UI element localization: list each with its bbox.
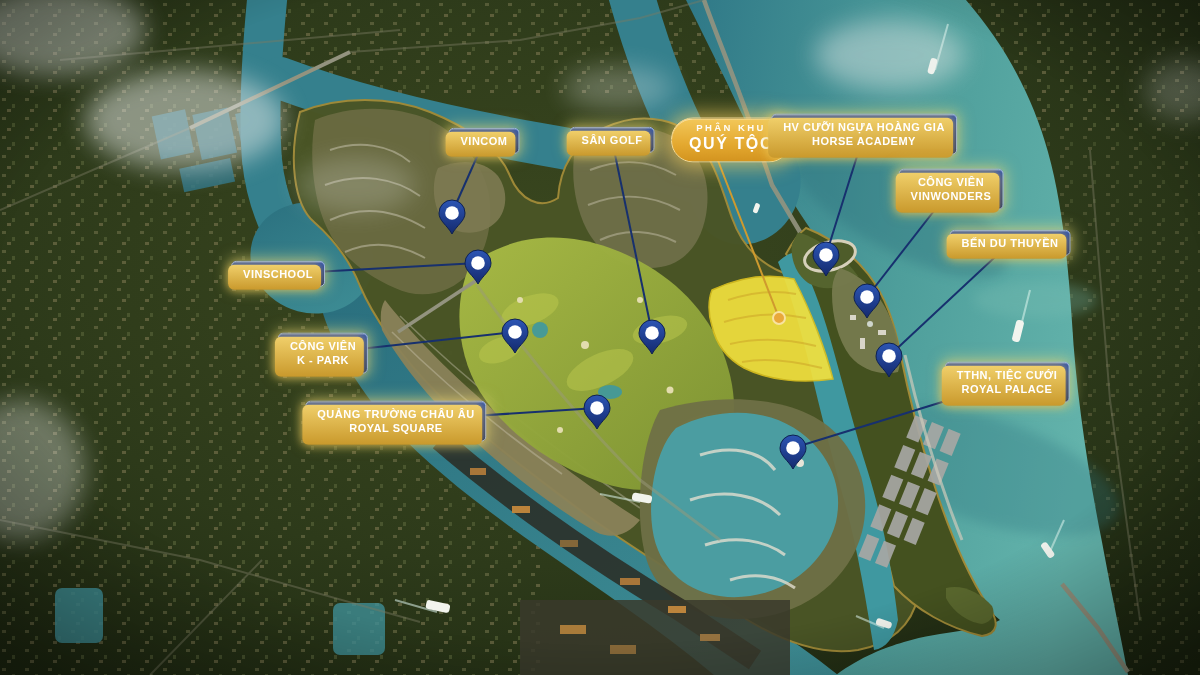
callout-san-golf[interactable]: SÂN GOLF <box>570 127 655 153</box>
callout-horse-academy[interactable]: HV CƯỠI NGỰA HOÀNG GIAHORSE ACADEMY <box>771 114 957 155</box>
callout-royal-palace-line-1: ROYAL PALACE <box>957 382 1058 396</box>
callout-phan-khu-quy-toc-line-0: PHÂN KHU <box>689 122 773 134</box>
callout-royal-palace[interactable]: TTHN, TIỆC CƯỚIROYAL PALACE <box>945 362 1070 403</box>
callout-vincom[interactable]: VINCOM <box>449 128 520 154</box>
callout-cong-vien-k-park-line-1: K - PARK <box>290 353 356 367</box>
callout-cong-vien-vinwonders[interactable]: CÔNG VIÊNVINWONDERS <box>899 169 1004 210</box>
callout-vinschool[interactable]: VINSCHOOL <box>231 261 325 287</box>
masterplan-map: VINCOMSÂN GOLFPHÂN KHUQUÝ TỘCHV CƯỠI NGỰ… <box>0 0 1200 675</box>
callout-ben-du-thuyen[interactable]: BẾN DU THUYỀN <box>950 230 1071 256</box>
callout-cong-vien-vinwonders-line-1: VINWONDERS <box>911 189 992 203</box>
callout-cong-vien-vinwonders-line-0: CÔNG VIÊN <box>911 175 992 189</box>
callout-horse-academy-line-1: HORSE ACADEMY <box>783 134 945 148</box>
callout-cong-vien-k-park-line-0: CÔNG VIÊN <box>290 339 356 353</box>
callout-san-golf-line-0: SÂN GOLF <box>582 133 643 147</box>
callout-royal-square-line-1: ROYAL SQUARE <box>317 421 474 435</box>
callout-royal-palace-line-0: TTHN, TIỆC CƯỚI <box>957 368 1058 382</box>
callout-vincom-line-0: VINCOM <box>461 134 508 148</box>
callout-phan-khu-quy-toc-line-1: QUÝ TỘC <box>689 135 773 156</box>
callout-royal-square-line-0: QUẢNG TRƯỜNG CHÂU ÂU <box>317 407 474 421</box>
callout-ben-du-thuyen-line-0: BẾN DU THUYỀN <box>962 236 1059 250</box>
callout-vinschool-line-0: VINSCHOOL <box>243 267 313 281</box>
callout-cong-vien-k-park[interactable]: CÔNG VIÊNK - PARK <box>278 333 368 374</box>
callout-royal-square[interactable]: QUẢNG TRƯỜNG CHÂU ÂUROYAL SQUARE <box>305 401 486 442</box>
callout-horse-academy-line-0: HV CƯỠI NGỰA HOÀNG GIA <box>783 120 945 134</box>
callout-labels: VINCOMSÂN GOLFPHÂN KHUQUÝ TỘCHV CƯỠI NGỰ… <box>0 0 1200 675</box>
